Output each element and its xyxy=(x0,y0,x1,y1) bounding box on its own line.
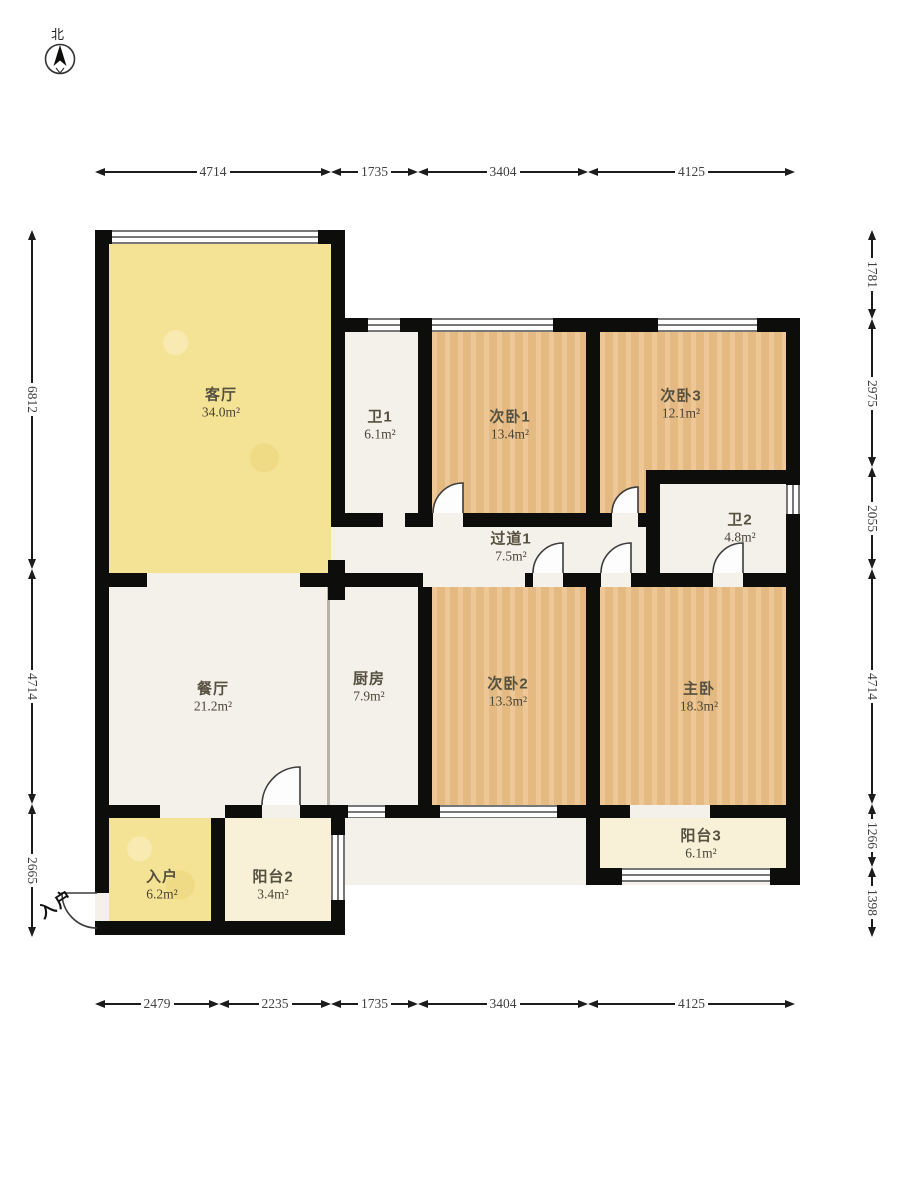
room-label-balcony3: 阳台3 6.1m² xyxy=(680,825,721,862)
dim-right-1: 1781 xyxy=(864,230,880,319)
dim-right-3: 2055 xyxy=(864,467,880,569)
room-label-dining: 餐厅 21.2m² xyxy=(194,678,232,715)
room-label-living: 客厅 34.0m² xyxy=(202,384,240,421)
dim-left-3: 2665 xyxy=(24,804,40,937)
arrow-up-icon xyxy=(28,230,36,240)
dim-top-1: 4714 xyxy=(95,164,331,180)
dim-right-6: 1398 xyxy=(864,867,880,937)
door-master xyxy=(601,543,631,573)
door-bed3 xyxy=(612,487,638,513)
dim-bottom-2: 2235 xyxy=(219,996,331,1012)
room-label-balcony2: 阳台2 3.4m² xyxy=(252,866,293,903)
dim-right-5: 1266 xyxy=(864,804,880,867)
dim-bottom-1: 2479 xyxy=(95,996,219,1012)
door-bed1 xyxy=(433,483,463,513)
room-label-bed2: 次卧2 13.3m² xyxy=(487,673,528,710)
floorplan-canvas: 客厅 34.0m² 卫1 6.1m² 次卧1 13.4m² 次卧3 12.1m²… xyxy=(0,0,898,1180)
dim-top-3: 3404 xyxy=(418,164,588,180)
room-label-bath2: 卫2 4.8m² xyxy=(724,509,755,546)
arrow-left-icon xyxy=(95,168,105,176)
dim-left-1: 6812 xyxy=(24,230,40,569)
dim-right-2: 2975 xyxy=(864,319,880,467)
room-label-master: 主卧 18.3m² xyxy=(680,678,718,715)
dim-right-4: 4714 xyxy=(864,569,880,804)
room-label-kitchen: 厨房 7.9m² xyxy=(353,668,385,705)
dim-bottom-5: 4125 xyxy=(588,996,795,1012)
door-dining-balcony xyxy=(262,767,300,805)
arrow-right-icon xyxy=(321,168,331,176)
room-label-bed1: 次卧1 13.4m² xyxy=(489,406,530,443)
dim-left-2: 4714 xyxy=(24,569,40,804)
dim-bottom-4: 3404 xyxy=(418,996,588,1012)
dim-bottom-3: 1735 xyxy=(331,996,418,1012)
dim-top-4: 4125 xyxy=(588,164,795,180)
door-bed2 xyxy=(533,543,563,573)
room-label-bed3: 次卧3 12.1m² xyxy=(660,385,701,422)
room-label-corridor: 过道1 7.5m² xyxy=(490,528,531,565)
dim-top-2: 1735 xyxy=(331,164,418,180)
room-label-entry: 入户 6.2m² xyxy=(146,866,178,903)
door-bath2 xyxy=(713,543,743,573)
arrow-down-icon xyxy=(28,559,36,569)
room-label-bath1: 卫1 6.1m² xyxy=(364,406,395,443)
north-arrow-icon xyxy=(46,45,75,74)
north-label: 北 xyxy=(51,24,64,43)
